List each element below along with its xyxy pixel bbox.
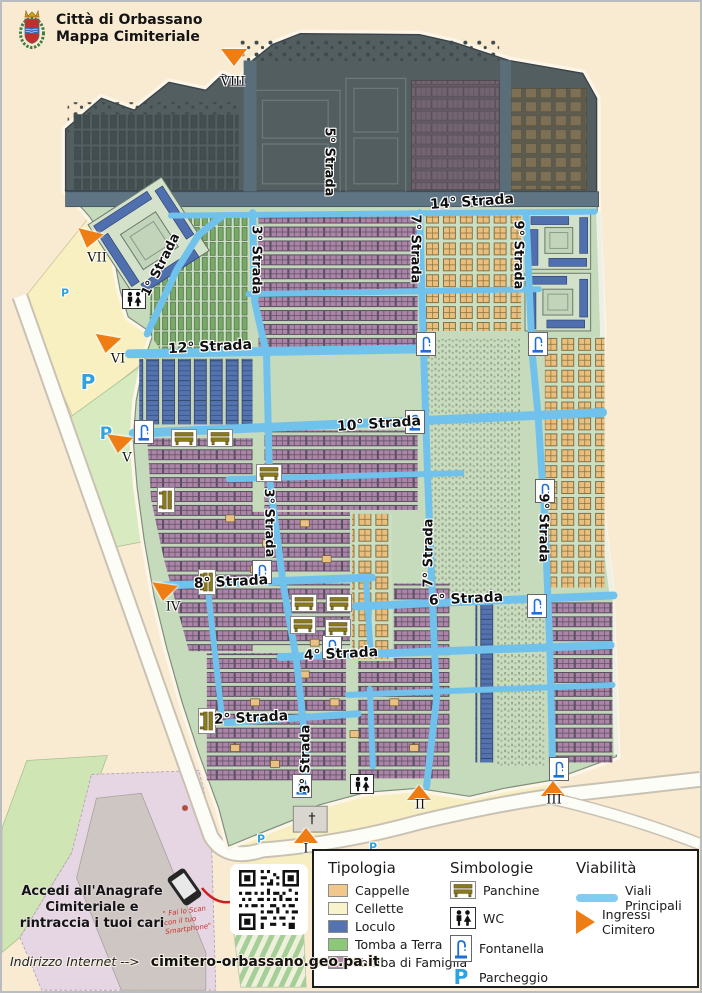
cemetery-map-page: Città di Orbassano Mappa Cimiteriale 5° … — [0, 0, 702, 993]
bench-icon — [157, 487, 175, 513]
legend-label: Panchine — [483, 883, 539, 898]
footer-url: cimitero-orbassano.geo.pa.it — [151, 954, 380, 970]
fountain-icon — [528, 332, 548, 356]
qr-code — [230, 864, 308, 935]
street-label: 9° Strada — [536, 494, 551, 563]
entrance-numeral: II — [415, 798, 425, 813]
fountain-icon — [134, 420, 154, 444]
footer-label: Indirizzo Internet --> — [10, 954, 140, 969]
anagrafe-line: Accedi all'Anagrafe — [18, 884, 166, 900]
bench-icon — [290, 616, 316, 634]
legend-label: Tomba a Terra — [355, 937, 442, 952]
legend-section-title: Viabilità — [576, 859, 636, 877]
bench-icon — [256, 464, 282, 482]
bench-icon — [207, 429, 233, 447]
entrance-numeral: IV — [166, 600, 181, 615]
entrance-numeral: V — [122, 451, 131, 466]
cemetery-map-graphics — [2, 2, 700, 991]
cellette-swatch — [328, 902, 348, 915]
fountain-icon — [450, 935, 472, 962]
legend-section-title: Tipologia — [328, 859, 396, 877]
parking-icon: P — [450, 965, 472, 989]
street-label: 3° Strada — [299, 725, 314, 794]
entrance-numeral: VI — [111, 352, 126, 367]
entrance-numeral: VII — [87, 251, 107, 266]
legend-section-title: Simbologie — [450, 859, 533, 877]
wc-icon — [450, 907, 476, 929]
church-cross-icon: † — [309, 811, 316, 827]
legend-label: WC — [483, 911, 504, 926]
footer-internet-address: Indirizzo Internet --> cimitero-orbassan… — [10, 951, 380, 970]
entrance-numeral: VIII — [221, 75, 246, 90]
bench-icon — [171, 429, 197, 447]
cappelle-swatch — [328, 884, 348, 897]
main-road-line — [576, 894, 618, 902]
parking-letter: P — [257, 833, 265, 846]
anagrafe-note: Accedi all'Anagrafe Cimiteriale e rintra… — [18, 884, 166, 932]
street-label: 7° Strada — [408, 215, 423, 284]
street-label: 3° Strada — [261, 488, 277, 557]
fountain-icon — [549, 757, 569, 781]
entrance-numeral: III — [546, 793, 561, 808]
legend-label: Cappelle — [355, 883, 410, 898]
poi-marker — [182, 805, 188, 811]
legend-label: Fontanella — [479, 941, 544, 956]
legend-label: Parcheggio — [479, 970, 548, 985]
street-label: 3° Strada — [249, 226, 264, 295]
tomba-a-terra-swatch — [328, 938, 348, 951]
page-title-line2: Mappa Cimiteriale — [56, 29, 202, 46]
entrance-numeral: I — [303, 842, 308, 857]
page-title-line1: Città di Orbassano — [56, 12, 202, 29]
bench-icon — [291, 594, 317, 612]
bench-icon — [450, 881, 476, 899]
anagrafe-line: rintraccia i tuoi cari — [18, 916, 166, 932]
loculo-swatch — [328, 920, 348, 933]
parking-letter: P — [61, 287, 69, 300]
legend-label: Ingressi Cimitero — [602, 907, 697, 937]
entrance-triangle-icon — [576, 910, 595, 934]
city-crest-icon — [16, 8, 48, 50]
parking-letter: P — [81, 370, 96, 394]
entrance-triangle-viii — [221, 49, 247, 66]
bench-icon — [326, 594, 352, 612]
fountain-icon — [527, 594, 547, 618]
wc-icon — [350, 774, 374, 794]
fountain-icon — [416, 332, 436, 356]
header: Città di Orbassano Mappa Cimiteriale — [16, 8, 202, 50]
street-label: 9° Strada — [511, 221, 526, 290]
street-label: 5° Strada — [322, 128, 337, 197]
street-label: 7° Strada — [422, 519, 437, 588]
legend-label: Cellette — [355, 901, 404, 916]
legend-label: Loculo — [355, 919, 395, 934]
bench-icon — [325, 619, 351, 637]
anagrafe-line: Cimiteriale e — [18, 900, 166, 916]
